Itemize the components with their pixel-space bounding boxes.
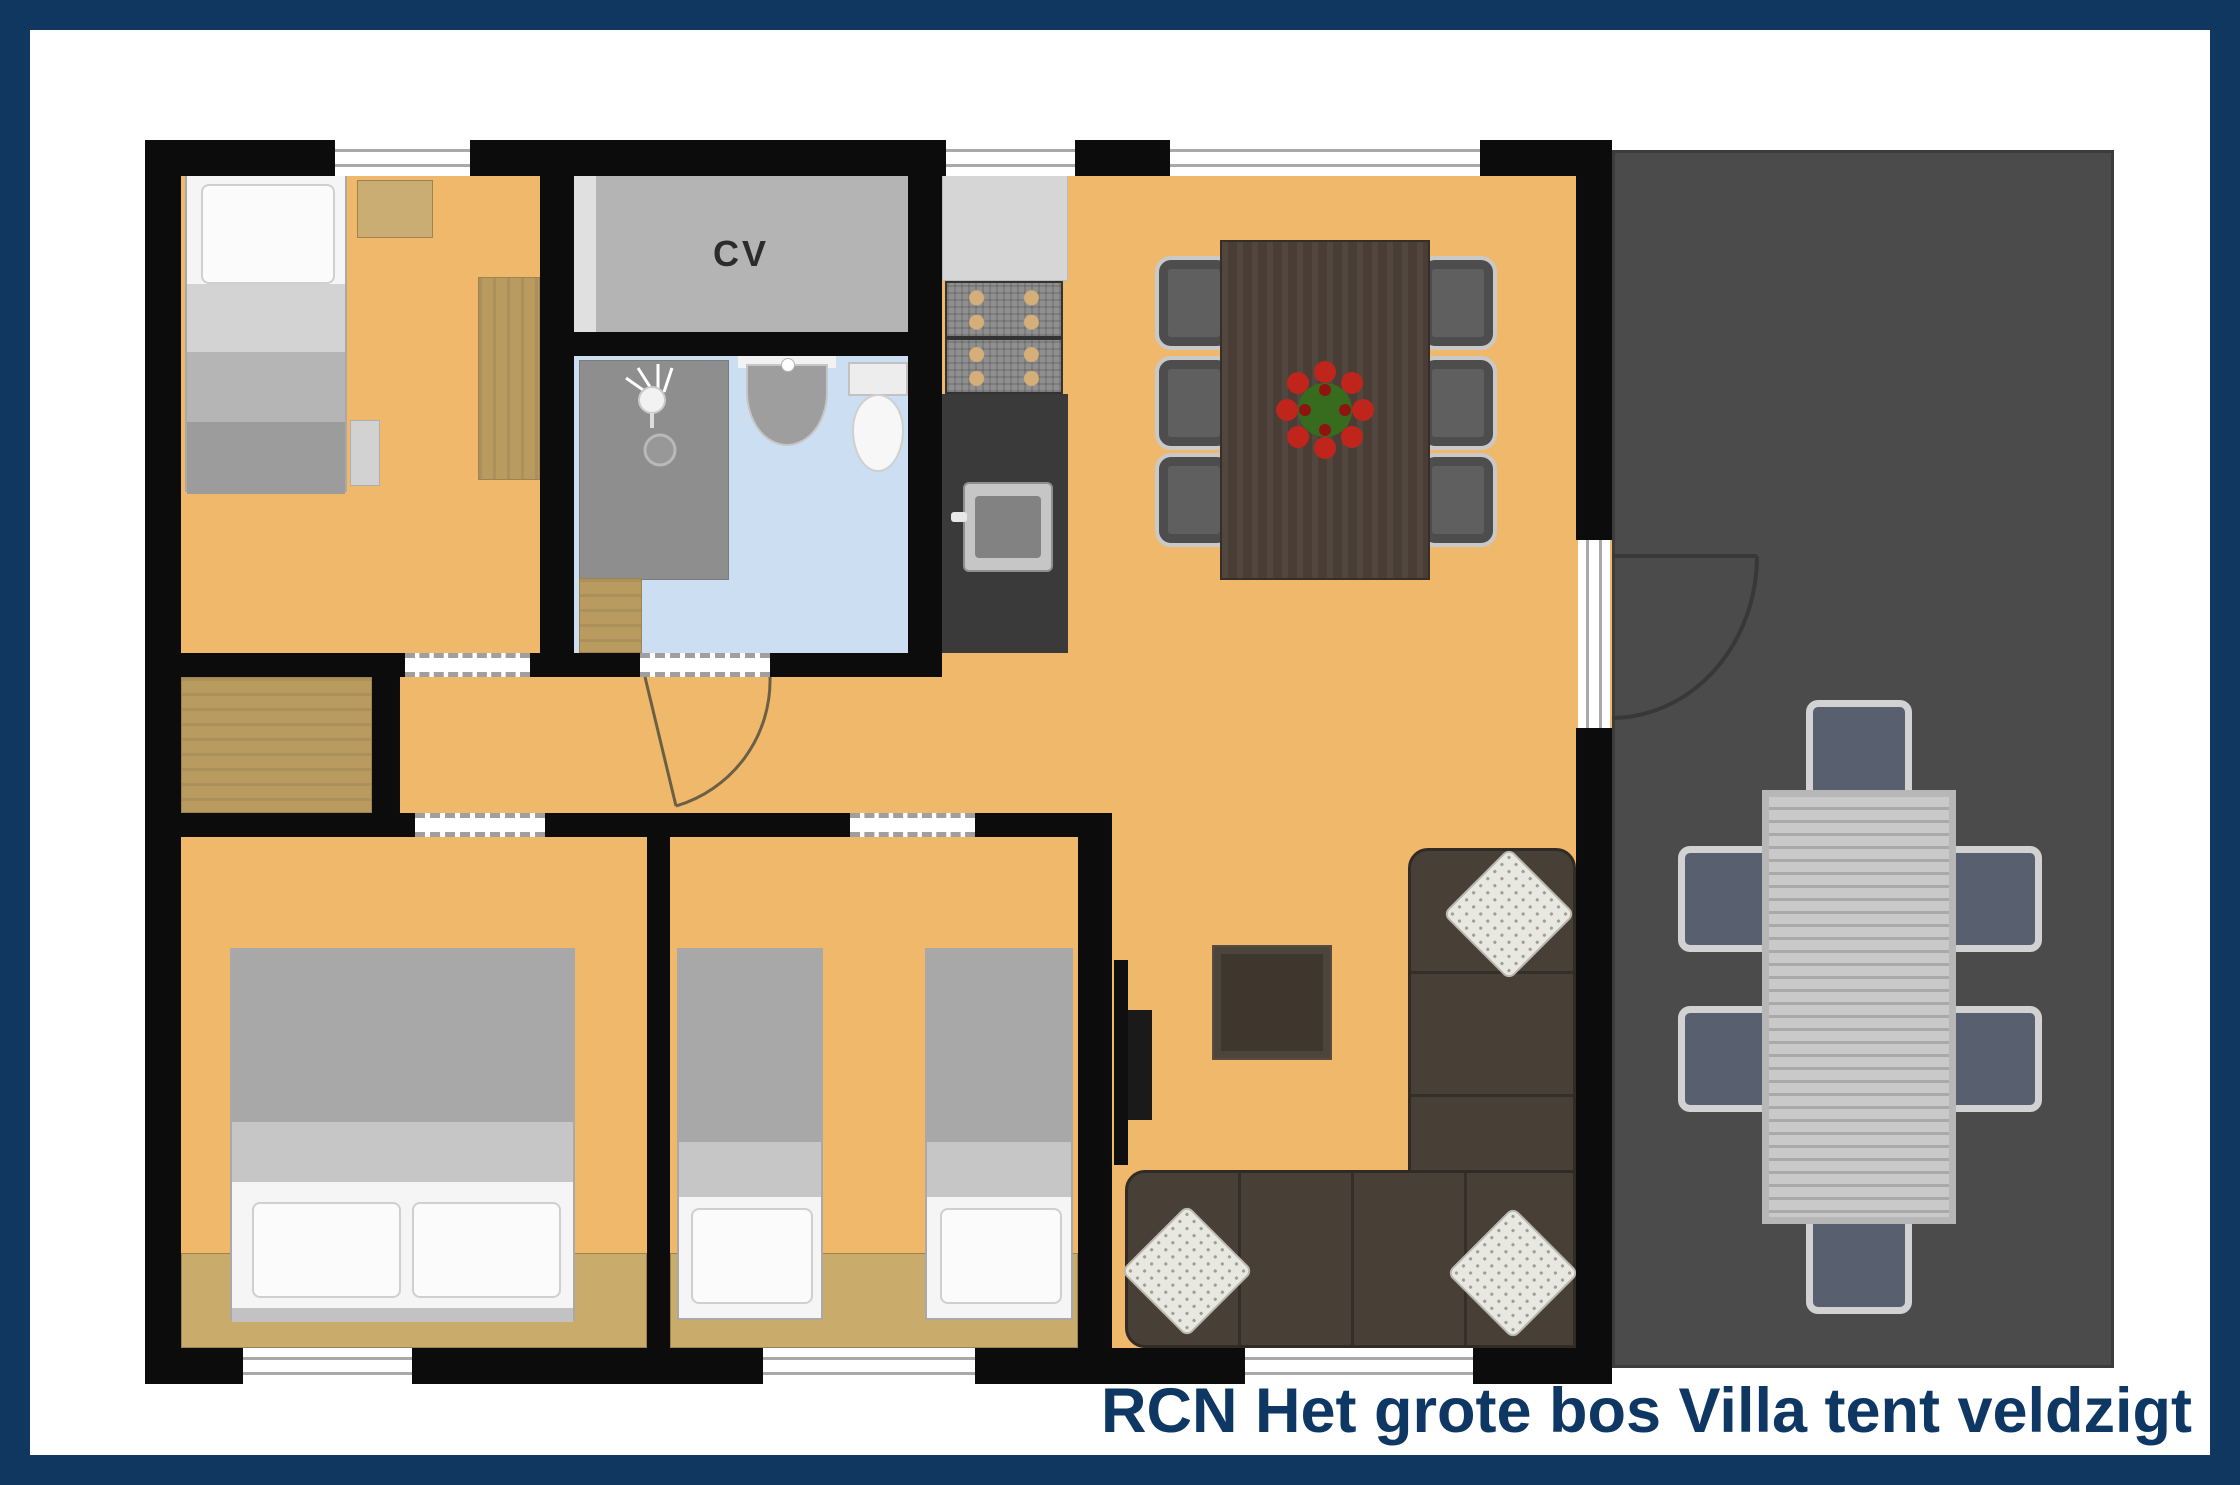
bathroom-bench bbox=[579, 578, 642, 653]
door-terrace bbox=[1578, 540, 1610, 728]
wall-hallway-bottom bbox=[545, 813, 850, 837]
bed-pillow bbox=[691, 1208, 813, 1304]
bed-blanket bbox=[232, 950, 573, 1122]
door-bedroom2 bbox=[415, 813, 545, 837]
outdoor-chair bbox=[1678, 846, 1764, 952]
tv-wall-bracket bbox=[1114, 960, 1128, 1165]
window bbox=[946, 140, 1075, 176]
window bbox=[763, 1348, 975, 1384]
outdoor-chair bbox=[1678, 1006, 1764, 1112]
dining-table bbox=[1220, 240, 1430, 580]
wall-top bbox=[1075, 140, 1170, 176]
coffee-table bbox=[1212, 945, 1332, 1060]
hallway-wardrobe bbox=[181, 677, 372, 813]
outdoor-chair bbox=[1806, 1222, 1912, 1314]
stove-burners-top bbox=[945, 281, 1063, 338]
door-bedroom3 bbox=[850, 813, 975, 837]
bed-blanket bbox=[187, 422, 345, 494]
outdoor-chair bbox=[1806, 700, 1912, 792]
single-bed-top-left bbox=[185, 170, 347, 492]
toilet-tank bbox=[848, 362, 908, 396]
cv-room-left-edge bbox=[574, 176, 596, 332]
bed-blanket-mid bbox=[187, 352, 345, 422]
plan-title: RCN Het grote bos Villa tent veldzigt bbox=[1101, 1375, 2192, 1447]
dining-chair bbox=[1419, 453, 1497, 547]
wall-between-bedrooms bbox=[647, 837, 670, 1384]
bed-sheet bbox=[927, 1142, 1071, 1197]
wall-terrace bbox=[1576, 728, 1612, 1384]
bed-pillow-left bbox=[252, 1202, 401, 1298]
bathroom-faucet bbox=[781, 358, 795, 372]
stove-burners-bottom bbox=[945, 338, 1063, 394]
wall-cv-bottom bbox=[540, 332, 942, 356]
outdoor-table bbox=[1762, 790, 1956, 1224]
bed-pillow bbox=[940, 1208, 1062, 1304]
wall-hallway-top bbox=[770, 653, 942, 677]
window bbox=[243, 1348, 412, 1384]
bed-sheet bbox=[679, 1142, 821, 1197]
bedroom1-mat bbox=[357, 180, 433, 238]
wall-terrace bbox=[1576, 140, 1612, 540]
bed-pillow-right bbox=[412, 1202, 561, 1298]
cv-room-label: CV bbox=[713, 233, 769, 275]
dining-chair bbox=[1419, 256, 1497, 350]
kitchen-counter bbox=[942, 163, 1068, 281]
wall-bottom bbox=[145, 1348, 243, 1384]
window bbox=[1170, 140, 1480, 176]
wall-kitchen-left bbox=[908, 176, 942, 677]
kitchen-sink-basin bbox=[975, 496, 1041, 558]
dining-chair bbox=[1419, 356, 1497, 450]
floor-plan-image: CV bbox=[0, 0, 2240, 1485]
wall-bottom bbox=[412, 1348, 763, 1384]
wall-bedroom1-right bbox=[540, 176, 574, 677]
twin-bed-left bbox=[677, 948, 823, 1320]
tv-screen bbox=[1128, 1010, 1152, 1120]
kitchen-faucet bbox=[951, 512, 967, 522]
wall-bedroom3-right bbox=[1078, 813, 1112, 1384]
bed-footboard bbox=[232, 1308, 573, 1322]
bed-blanket bbox=[679, 950, 821, 1142]
outdoor-chair bbox=[1956, 846, 2042, 952]
bed-pillow bbox=[201, 184, 335, 284]
cv-room: CV bbox=[574, 176, 908, 332]
double-bed bbox=[230, 948, 575, 1320]
wall-hallway-top bbox=[145, 653, 405, 677]
window bbox=[335, 140, 470, 176]
wall-left bbox=[145, 140, 181, 1384]
door-bathroom bbox=[640, 653, 770, 677]
shower bbox=[579, 360, 729, 580]
bed-blanket bbox=[927, 950, 1071, 1142]
wall-top bbox=[470, 140, 946, 176]
bed-sheet bbox=[232, 1122, 573, 1182]
wall-hallway-top bbox=[530, 653, 640, 677]
bedroom1-nightstand bbox=[350, 420, 380, 486]
outdoor-chair bbox=[1956, 1006, 2042, 1112]
bed-sheet bbox=[187, 284, 345, 352]
twin-bed-right bbox=[925, 948, 1073, 1320]
bedroom1-wardrobe bbox=[478, 277, 540, 480]
door-bedroom1 bbox=[405, 653, 530, 677]
wall-stub bbox=[372, 677, 400, 837]
